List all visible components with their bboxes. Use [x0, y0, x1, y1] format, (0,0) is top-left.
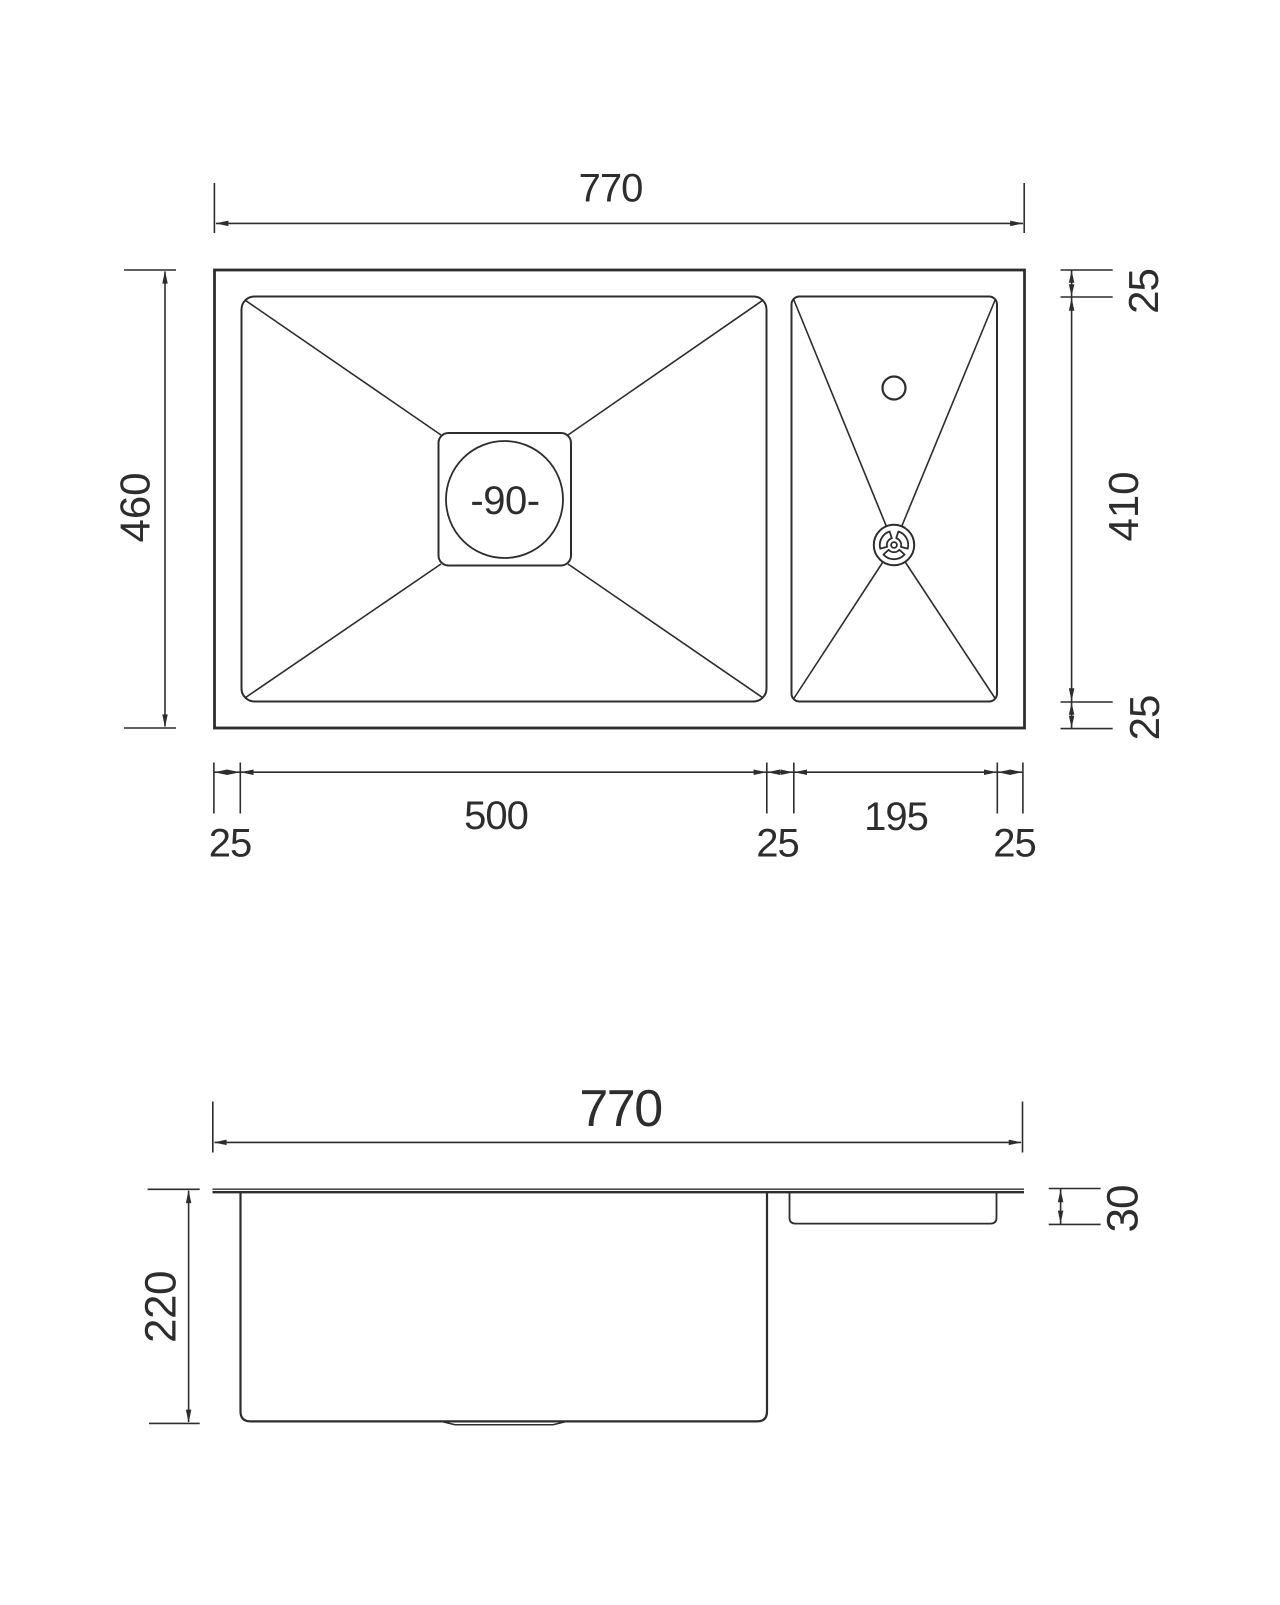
svg-text:25: 25 [1120, 269, 1167, 314]
svg-text:460: 460 [111, 472, 158, 542]
svg-text:25: 25 [209, 822, 252, 866]
svg-text:25: 25 [1121, 696, 1168, 741]
svg-text:500: 500 [464, 794, 528, 838]
svg-text:-90-: -90- [470, 479, 539, 523]
svg-text:25: 25 [993, 822, 1036, 866]
svg-text:195: 195 [864, 795, 928, 839]
svg-text:30: 30 [1099, 1186, 1148, 1233]
svg-text:25: 25 [756, 822, 799, 866]
svg-text:770: 770 [579, 1080, 661, 1138]
svg-text:770: 770 [579, 167, 643, 211]
svg-text:220: 220 [137, 1271, 186, 1343]
svg-text:410: 410 [1100, 471, 1147, 541]
